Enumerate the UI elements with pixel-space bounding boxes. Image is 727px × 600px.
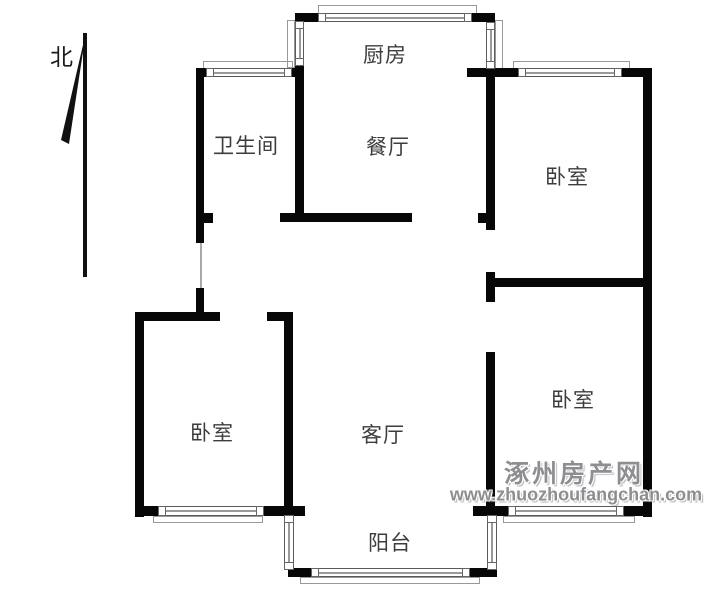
room-label-kitchen: 厨房 — [363, 39, 407, 69]
window-jamb — [614, 68, 622, 77]
window-jamb — [311, 568, 319, 577]
window-sill — [300, 577, 480, 584]
window-jamb — [256, 506, 264, 516]
wall-segment — [135, 312, 144, 517]
wall-segment — [478, 213, 495, 223]
window-sill — [287, 20, 295, 68]
wall-segment — [196, 213, 213, 223]
window-bathroom — [208, 68, 290, 77]
window-jamb — [295, 58, 304, 66]
room-label-living: 客厅 — [361, 419, 405, 449]
wall-segment — [135, 312, 220, 321]
window-jamb — [284, 68, 292, 77]
window-sill — [503, 516, 635, 523]
entry-door — [200, 243, 202, 288]
window-bedroom-left — [160, 506, 262, 516]
room-label-balcony: 阳台 — [368, 527, 412, 557]
window-bedroom-top-right — [520, 68, 622, 77]
room-label-bathroom: 卫生间 — [213, 130, 279, 160]
window-bedroom-bottom-right — [510, 506, 622, 516]
north-label: 北 — [50, 38, 73, 72]
window-jamb — [508, 506, 516, 516]
window-jamb — [486, 61, 495, 69]
wall-segment — [280, 213, 412, 222]
window-jamb — [486, 22, 495, 30]
floor-plan: 北 — [0, 0, 727, 600]
window-jamb — [284, 562, 294, 570]
window-kitchen-top — [320, 13, 472, 22]
watermark-site-url: www.zhuozhoufangchan.com — [450, 485, 702, 506]
window-jamb — [158, 506, 166, 516]
window-jamb — [518, 68, 526, 77]
window-jamb — [284, 515, 294, 523]
room-label-bedroom-bottom-right: 卧室 — [551, 384, 595, 414]
window-balcony-left — [284, 517, 294, 568]
room-label-dining: 餐厅 — [366, 131, 410, 161]
window-balcony-right — [487, 517, 497, 568]
window-sill — [495, 20, 503, 70]
window-jamb — [464, 13, 472, 22]
wall-segment — [486, 272, 495, 302]
window-jamb — [295, 21, 304, 29]
wall-segment — [486, 278, 652, 287]
wall-segment — [643, 68, 652, 517]
window-jamb — [487, 515, 497, 523]
wall-segment — [486, 77, 495, 230]
wall-segment — [284, 312, 293, 516]
window-jamb — [616, 506, 624, 516]
window-sill — [153, 516, 263, 523]
room-label-bedroom-left: 卧室 — [190, 417, 234, 447]
window-jamb — [206, 68, 214, 77]
room-label-bedroom-top-right: 卧室 — [545, 161, 589, 191]
window-jamb — [462, 568, 470, 577]
window-jamb — [487, 562, 497, 570]
window-balcony-bottom — [313, 568, 468, 577]
window-jamb — [318, 13, 326, 22]
